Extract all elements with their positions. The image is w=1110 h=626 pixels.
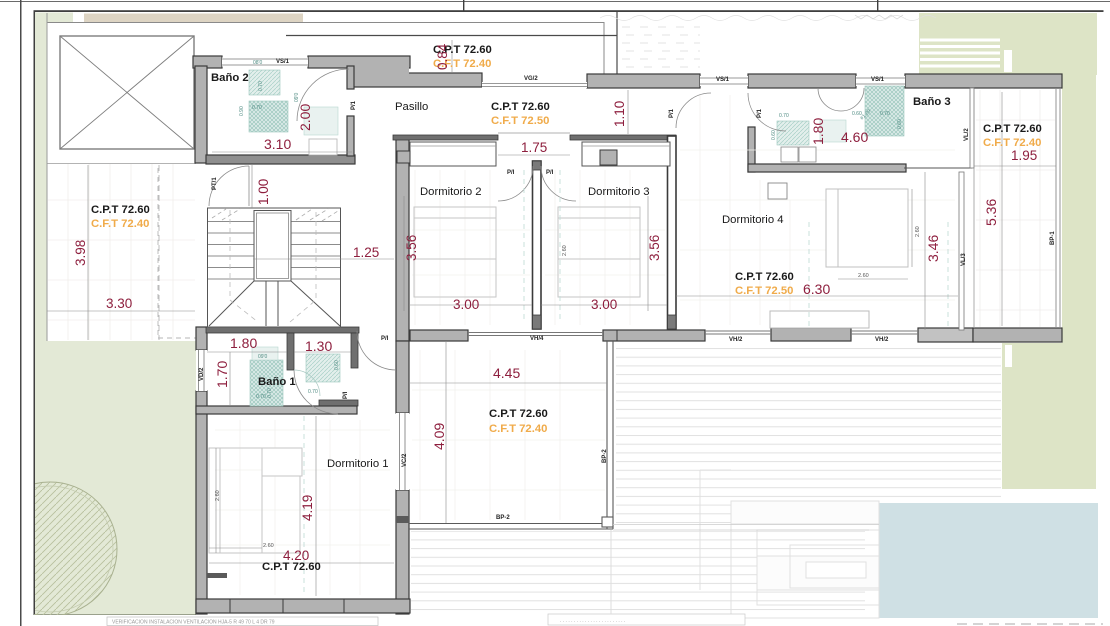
svg-text:VC/2: VC/2 xyxy=(402,453,408,467)
svg-text:VERIFICACION INSTALACION VENTI: VERIFICACION INSTALACION VENTILACION HJA… xyxy=(112,620,275,626)
svg-text:BP-2: BP-2 xyxy=(496,515,510,521)
svg-text:VL/3: VL/3 xyxy=(961,253,967,266)
svg-text:C.F.T 72.50: C.F.T 72.50 xyxy=(735,285,793,297)
svg-text:Dormitorio 4: Dormitorio 4 xyxy=(722,214,784,226)
svg-text:09'0: 09'0 xyxy=(294,92,300,102)
svg-text:1.30: 1.30 xyxy=(305,338,332,354)
svg-text:VS/1: VS/1 xyxy=(871,77,885,83)
svg-text:0.70: 0.70 xyxy=(258,81,264,91)
svg-text:5.36: 5.36 xyxy=(983,199,999,226)
svg-text:VL/2: VL/2 xyxy=(964,128,970,141)
svg-text:1.95: 1.95 xyxy=(1011,148,1037,163)
svg-text:VH/4: VH/4 xyxy=(530,336,544,342)
svg-text:P/1: P/1 xyxy=(351,100,357,110)
svg-text:C.P.T 72.60: C.P.T 72.60 xyxy=(489,408,548,420)
svg-text:1.75: 1.75 xyxy=(521,140,547,155)
svg-text:C.F.T 72.40: C.F.T 72.40 xyxy=(489,423,547,435)
svg-text:0.70: 0.70 xyxy=(267,388,273,398)
svg-text:VG/2: VG/2 xyxy=(524,76,538,82)
svg-text:4.45: 4.45 xyxy=(493,365,520,381)
svg-text:P/1: P/1 xyxy=(669,108,675,118)
svg-text:0.70: 0.70 xyxy=(256,394,266,400)
svg-text:Dormitorio 3: Dormitorio 3 xyxy=(588,186,650,198)
svg-text:0.60: 0.60 xyxy=(897,119,903,129)
svg-text:VS/1: VS/1 xyxy=(276,59,290,65)
svg-text:09'0: 09'0 xyxy=(258,354,268,360)
svg-text:VS/1: VS/1 xyxy=(716,77,730,83)
svg-text:0.60: 0.60 xyxy=(771,130,777,140)
svg-text:0.70: 0.70 xyxy=(308,389,318,395)
svg-text:P/1: P/1 xyxy=(757,108,763,118)
svg-text:VH/2: VH/2 xyxy=(875,337,889,343)
svg-text:3.56: 3.56 xyxy=(404,235,419,261)
svg-text:2.60: 2.60 xyxy=(915,226,921,237)
svg-text:6.30: 6.30 xyxy=(803,281,830,297)
svg-text:1.00: 1.00 xyxy=(256,179,271,205)
svg-text:1.25: 1.25 xyxy=(353,245,379,260)
svg-text:4.20: 4.20 xyxy=(283,548,309,563)
svg-text:0.70: 0.70 xyxy=(880,111,890,117)
svg-text:C.P.T 72.60: C.P.T 72.60 xyxy=(91,204,150,216)
svg-text:4.19: 4.19 xyxy=(300,495,315,521)
svg-text:PT/1: PT/1 xyxy=(212,177,218,190)
svg-text:VD/2: VD/2 xyxy=(199,367,205,381)
svg-text:0.60: 0.60 xyxy=(334,360,340,370)
svg-text:08'0: 08'0 xyxy=(253,60,263,66)
svg-text:P/I: P/I xyxy=(546,170,554,176)
svg-text:Dormitorio 2: Dormitorio 2 xyxy=(420,186,482,198)
svg-text:P/I: P/I xyxy=(343,391,349,399)
svg-text:1.10: 1.10 xyxy=(612,101,627,127)
svg-text:Baño 1: Baño 1 xyxy=(258,376,296,388)
svg-text:C.P.T 72.60: C.P.T 72.60 xyxy=(983,123,1042,135)
svg-text:BP-2: BP-2 xyxy=(602,449,608,463)
svg-text:. . . . . . . . . . . . .: . . . . . . . . . . . . . . . . . . . . … xyxy=(560,618,625,624)
svg-text:Pasillo: Pasillo xyxy=(395,101,428,113)
svg-text:0.70: 0.70 xyxy=(779,113,789,119)
svg-text:BP-1: BP-1 xyxy=(1050,231,1056,245)
svg-text:C.F.T 72.40: C.F.T 72.40 xyxy=(91,218,149,230)
svg-text:2.60: 2.60 xyxy=(562,245,568,256)
svg-text:2.60: 2.60 xyxy=(215,490,221,501)
svg-text:0.90: 0.90 xyxy=(239,106,245,116)
svg-text:1.80: 1.80 xyxy=(230,335,257,351)
svg-text:0.84: 0.84 xyxy=(435,43,450,70)
svg-text:P/I: P/I xyxy=(381,336,389,342)
svg-text:2.60: 2.60 xyxy=(263,543,274,549)
svg-text:3.98: 3.98 xyxy=(73,240,88,266)
svg-text:3.10: 3.10 xyxy=(264,136,291,152)
svg-text:4.09: 4.09 xyxy=(431,423,447,450)
svg-text:VH/2: VH/2 xyxy=(729,337,743,343)
svg-text:C.F.T 72.50: C.F.T 72.50 xyxy=(491,115,549,127)
svg-text:4.60: 4.60 xyxy=(841,129,868,145)
svg-text:0.70: 0.70 xyxy=(252,105,262,111)
svg-text:Baño 3: Baño 3 xyxy=(913,96,951,108)
svg-text:C.P.T 72.60: C.P.T 72.60 xyxy=(491,101,550,113)
svg-text:1.80: 1.80 xyxy=(810,118,826,145)
svg-text:Dormitorio 1: Dormitorio 1 xyxy=(327,458,389,470)
svg-text:2.00: 2.00 xyxy=(297,104,313,131)
svg-text:3.46: 3.46 xyxy=(925,235,941,262)
svg-text:3.00: 3.00 xyxy=(591,297,617,312)
svg-text:3.56: 3.56 xyxy=(647,235,662,261)
svg-text:P/I: P/I xyxy=(507,170,515,176)
svg-text:1.70: 1.70 xyxy=(214,361,230,388)
svg-text:Baño 2: Baño 2 xyxy=(211,72,249,84)
svg-text:3.30: 3.30 xyxy=(106,296,132,311)
svg-text:C.P.T 72.60: C.P.T 72.60 xyxy=(735,271,794,283)
svg-text:3.00: 3.00 xyxy=(453,297,479,312)
svg-text:2.60: 2.60 xyxy=(858,273,869,279)
